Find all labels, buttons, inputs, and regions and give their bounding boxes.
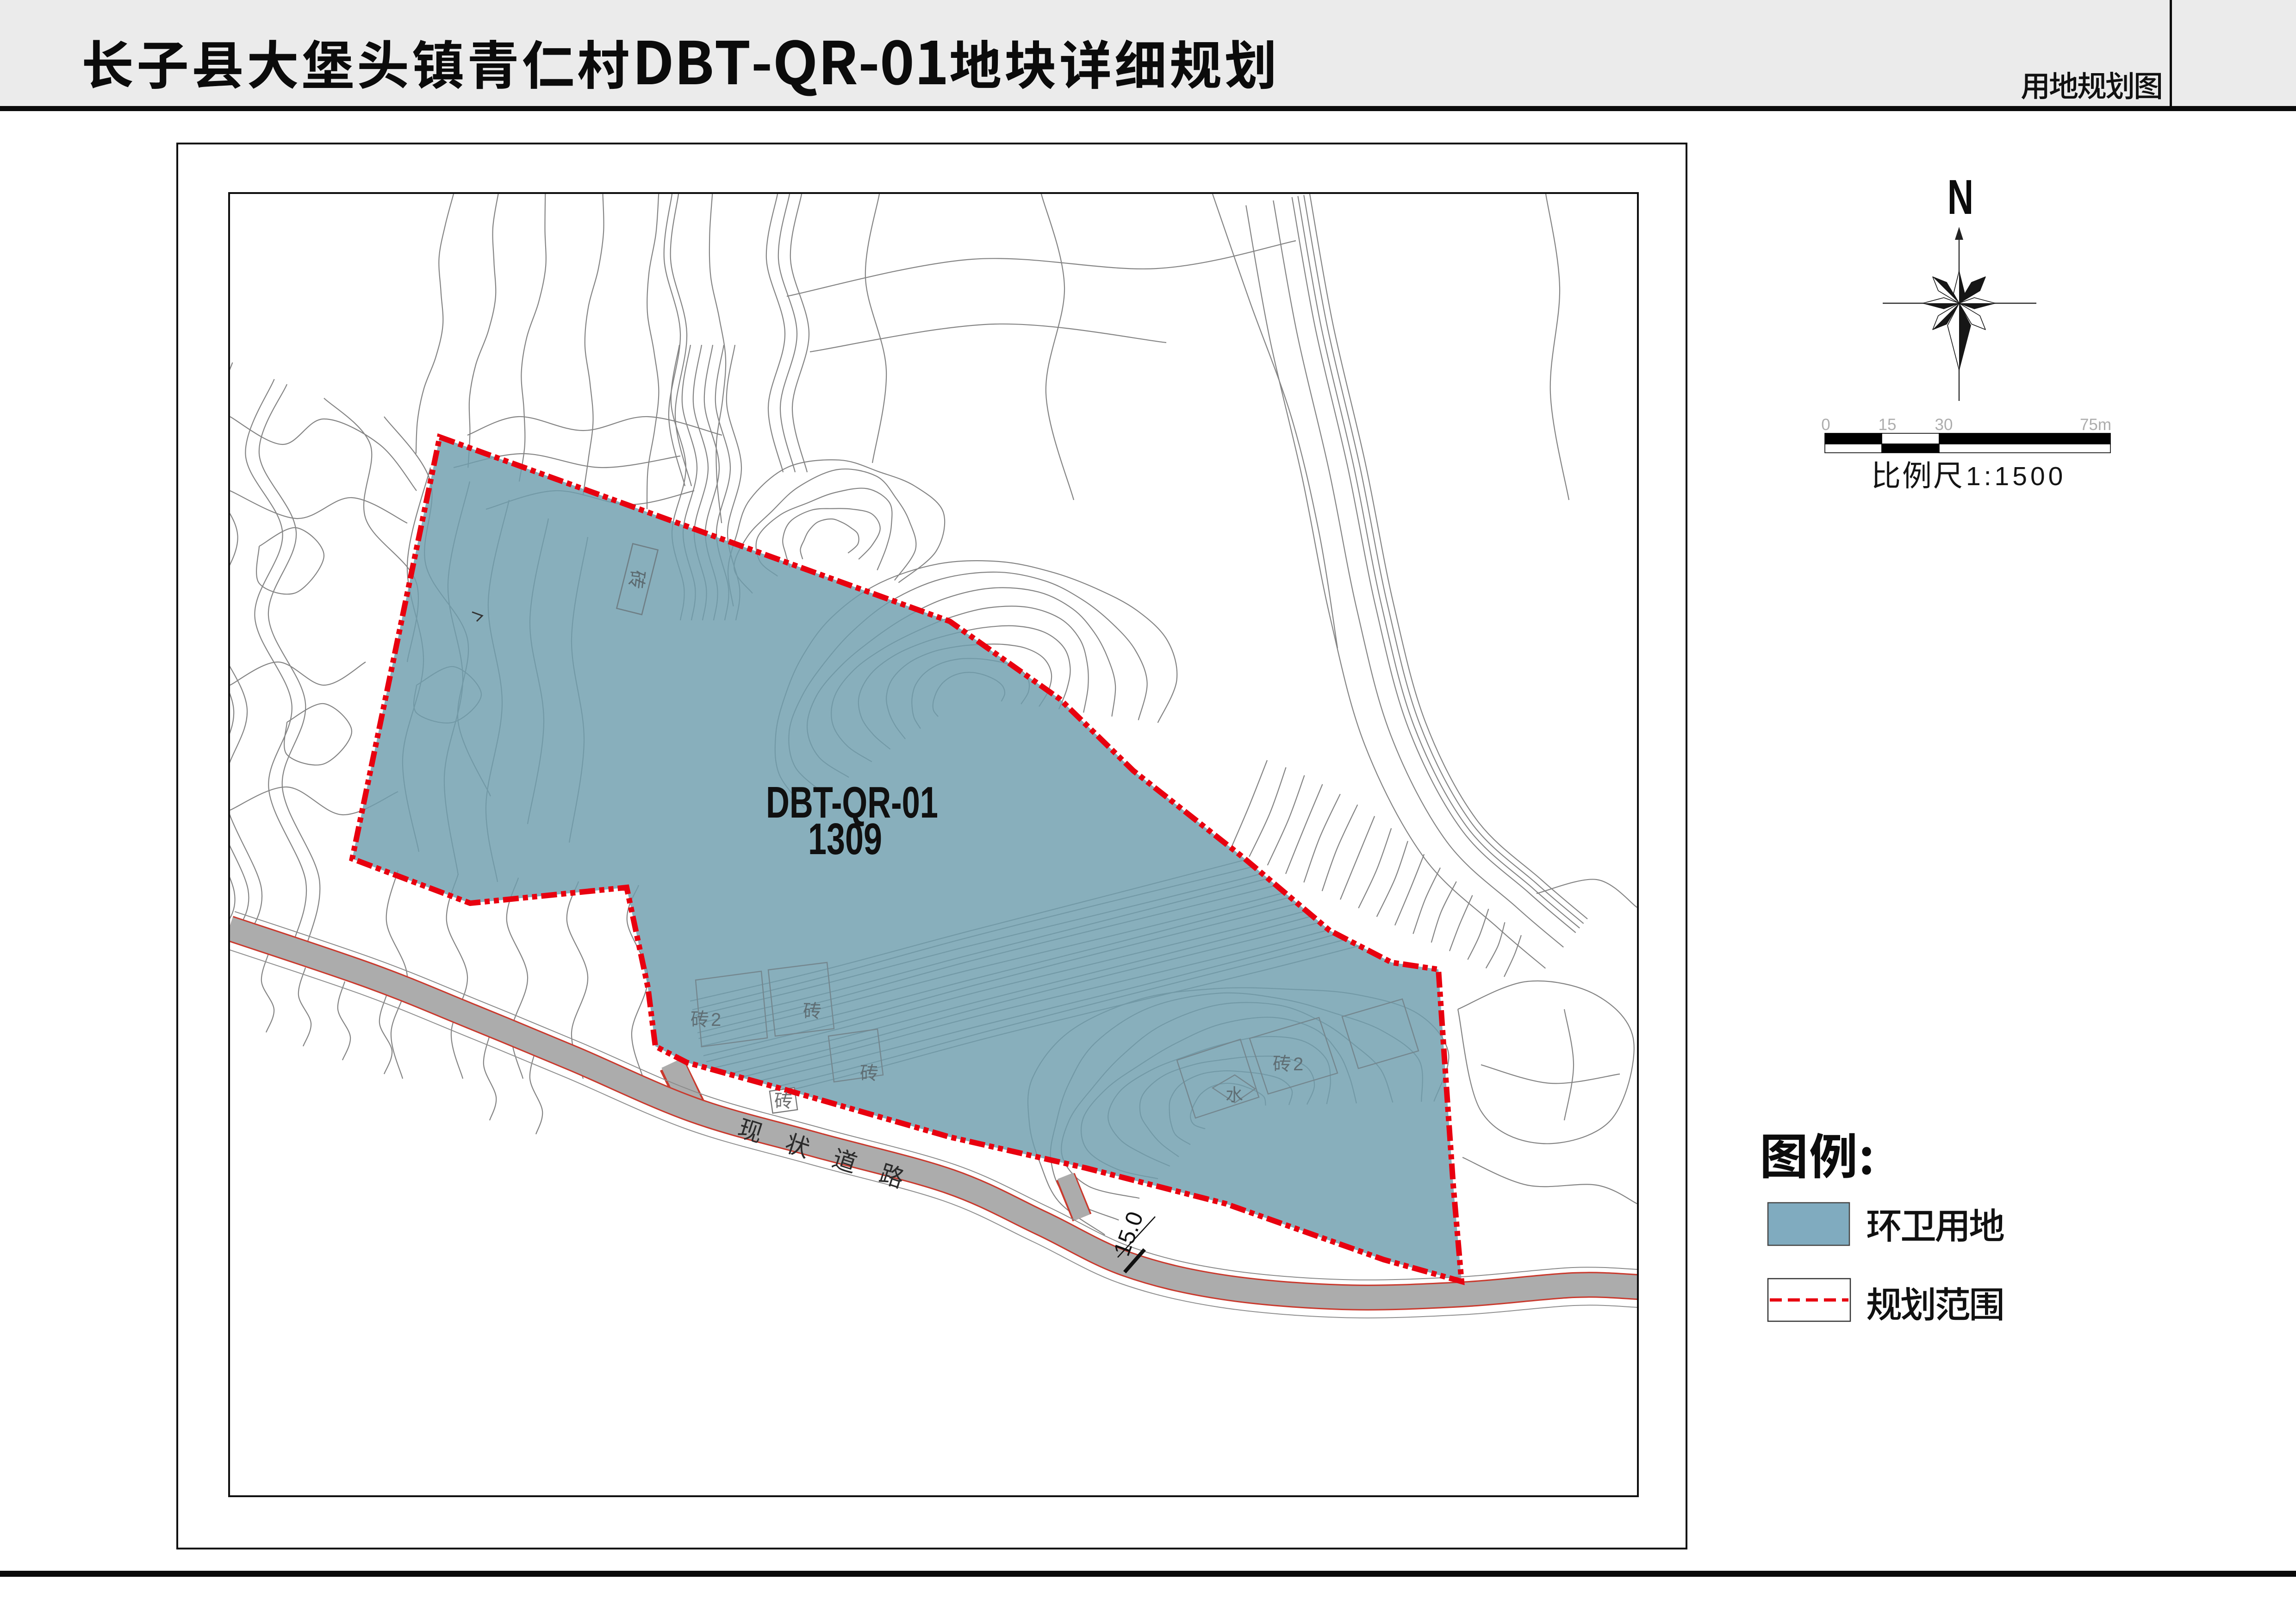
svg-text:75m: 75m [2080,416,2111,434]
svg-text:1309: 1309 [808,814,882,864]
svg-text:15: 15 [1879,416,1897,434]
svg-text:1:1500: 1:1500 [1966,462,2066,491]
svg-text:0: 0 [1821,416,1830,434]
svg-text:N: N [1948,170,1974,225]
svg-text:30: 30 [1935,416,1953,434]
svg-text:2: 2 [1293,1054,1303,1074]
svg-text:2: 2 [711,1010,721,1030]
